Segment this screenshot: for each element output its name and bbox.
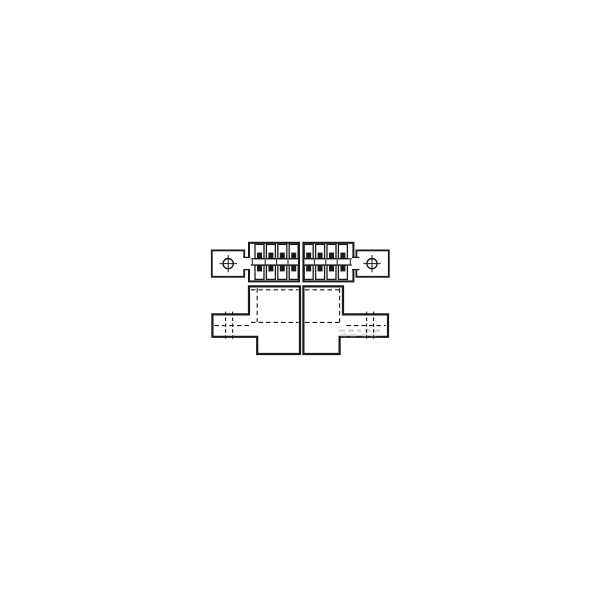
contact-pin [340, 265, 345, 271]
contact-pin [306, 253, 311, 259]
drawing-svg [0, 0, 600, 600]
contact-pin [306, 265, 311, 271]
contact-pin [268, 253, 273, 259]
contact-pin [318, 265, 323, 271]
contact-pin [280, 265, 285, 271]
contact-pin [291, 265, 296, 271]
contact-pin [318, 253, 323, 259]
contact-pin [329, 265, 334, 271]
contact-pin [329, 253, 334, 259]
contact-pin [257, 265, 262, 271]
contact-pin [340, 253, 345, 259]
contact-pin [268, 265, 273, 271]
top-right-neck-fill [352, 258, 360, 269]
contact-pin [291, 253, 296, 259]
front-right-body-outline [303, 286, 388, 354]
top-left-neck-fill [243, 258, 251, 269]
technical-drawing-page [0, 0, 600, 600]
contact-pin [280, 253, 285, 259]
contact-pin [257, 253, 262, 259]
